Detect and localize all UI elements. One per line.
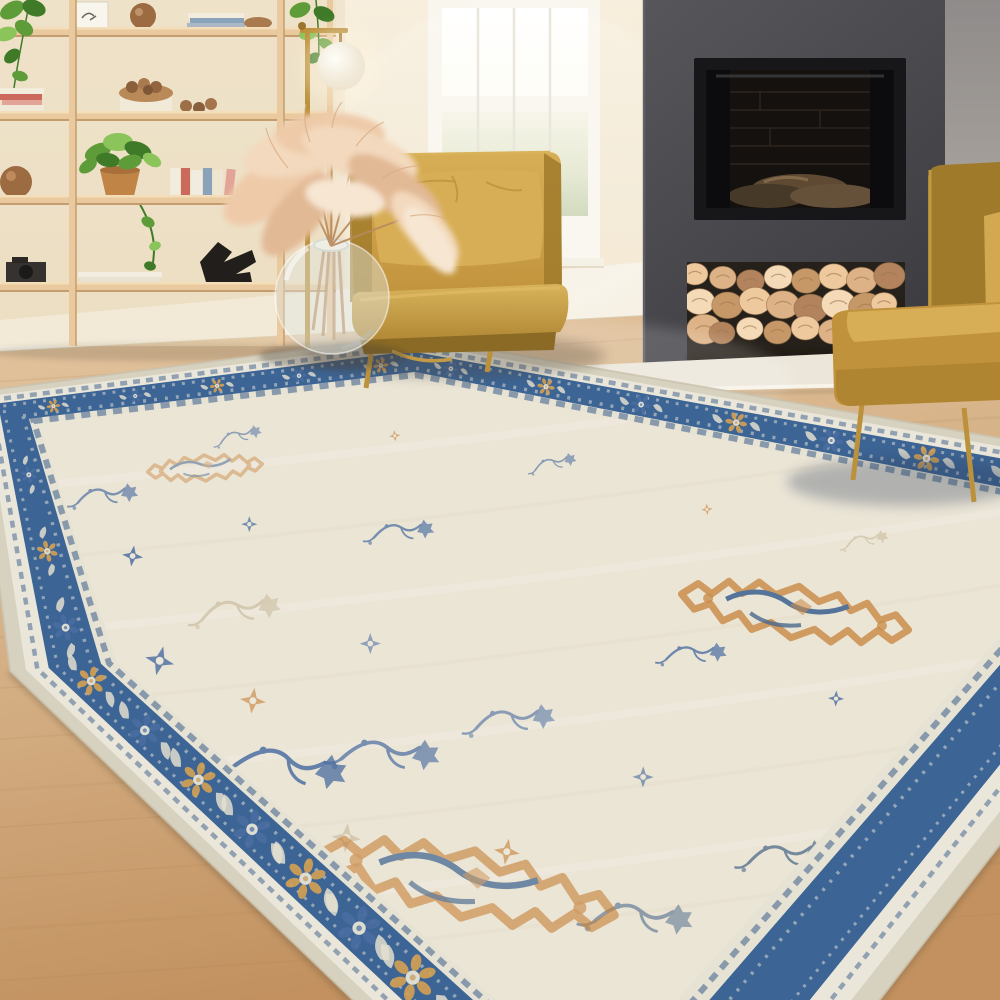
wooden-sphere-small: [130, 3, 156, 29]
chair-pillow-edge: [984, 212, 1000, 316]
firewood-log: [736, 317, 763, 340]
firewood-log: [819, 264, 849, 289]
shelf-post: [69, 0, 76, 346]
white-books-flat: [80, 277, 160, 282]
glass-vase: [275, 239, 389, 354]
firewood-log: [684, 289, 715, 315]
book-stack: [2, 100, 42, 105]
book-stack: [0, 88, 44, 94]
scene-svg: [0, 0, 1000, 1000]
living-room-photo: [0, 0, 1000, 1000]
lamp-finial: [298, 22, 306, 30]
flat-book: [188, 13, 244, 18]
sphere-highlight: [135, 8, 143, 16]
firebox-screen-left: [706, 70, 730, 208]
firewood-log: [709, 266, 736, 289]
firebox: [694, 58, 906, 220]
firewood-log: [874, 263, 905, 290]
book-stack: [0, 94, 42, 100]
wooden-egg: [180, 100, 192, 112]
firewood-log: [791, 316, 819, 340]
flat-book: [190, 18, 244, 23]
wooden-egg: [205, 98, 217, 110]
firewood-log: [764, 265, 792, 289]
firebox-screen-right: [870, 70, 894, 208]
firewood-log: [792, 268, 821, 293]
wooden-sphere-large: [0, 166, 32, 198]
camera-lens: [19, 265, 33, 279]
picture-frame: [72, 2, 108, 28]
firewood-log: [846, 267, 877, 293]
firewood-log: [764, 321, 792, 344]
firewood-log: [712, 292, 743, 319]
book-stack: [0, 105, 44, 111]
vase-body: [275, 240, 389, 354]
white-books-flat: [78, 272, 162, 277]
chair-wing-right: [544, 153, 562, 300]
